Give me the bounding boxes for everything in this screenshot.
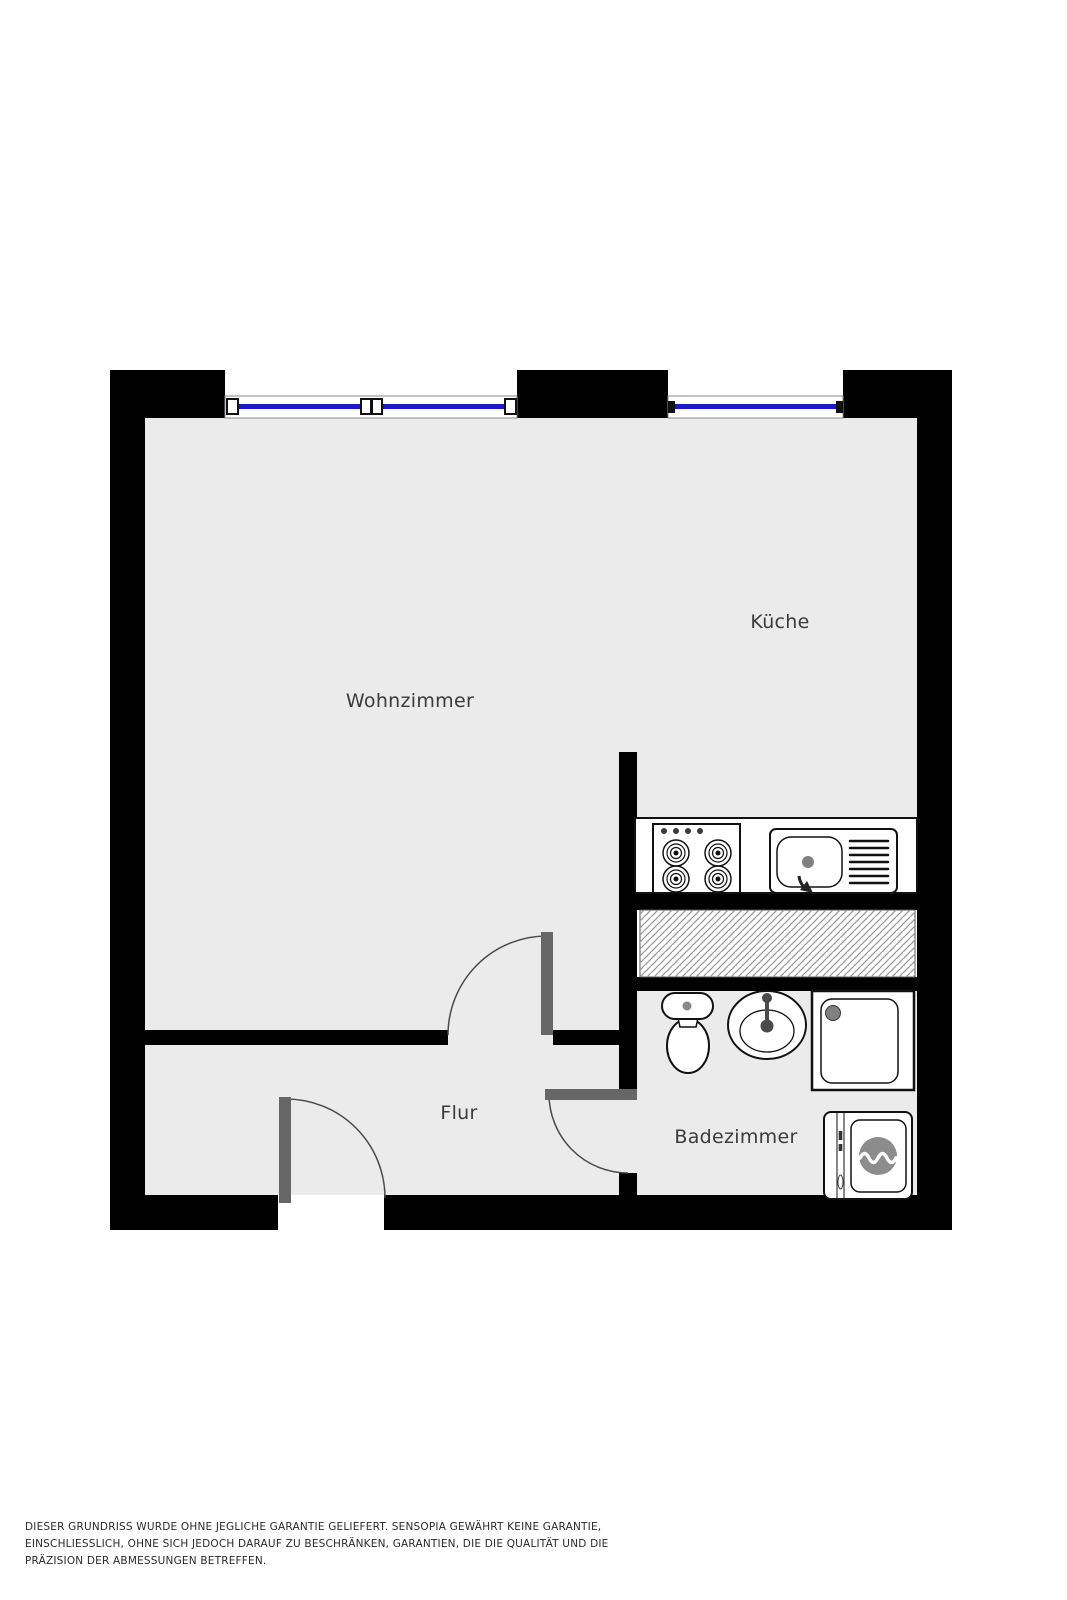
wall-bad-stub — [619, 1173, 637, 1195]
wall-duct-top — [619, 893, 917, 910]
burner — [663, 840, 689, 866]
stove-icon — [653, 824, 740, 893]
floorplan-drawing — [0, 0, 1067, 1600]
door-leaf — [279, 1097, 291, 1203]
window-glass-line — [674, 404, 837, 409]
burner — [705, 866, 731, 892]
kitchen-sink-icon — [770, 829, 897, 893]
door-leaf — [545, 1089, 637, 1100]
wall-top-pier-right — [843, 370, 952, 418]
wall-flur-left — [145, 1030, 448, 1045]
room-label-badezimmer: Badezimmer — [674, 1126, 797, 1148]
wall-top-pier-middle — [517, 370, 668, 418]
wall-top-pier-left — [110, 370, 225, 418]
floor-doorway-badezimmer — [619, 1090, 637, 1173]
wall-kueche-vertical — [619, 752, 637, 1090]
room-label-flur: Flur — [440, 1102, 477, 1124]
wall-bottom-right — [384, 1195, 952, 1230]
duct-hatch-area — [640, 910, 915, 977]
disclaimer-line: DIESER GRUNDRISS WURDE OHNE JEGLICHE GAR… — [25, 1519, 608, 1536]
door-leaf — [541, 932, 553, 1035]
burner — [663, 866, 689, 892]
wall-bottom-left — [110, 1195, 278, 1230]
burner — [705, 840, 731, 866]
shower-icon — [812, 991, 914, 1090]
floor-areas — [145, 416, 917, 1195]
washing-machine-icon — [824, 1112, 912, 1199]
disclaimer-text: DIESER GRUNDRISS WURDE OHNE JEGLICHE GAR… — [25, 1519, 608, 1570]
room-label-wohnzimmer: Wohnzimmer — [346, 690, 474, 712]
window-kueche — [668, 396, 843, 418]
wall-duct-bottom — [619, 977, 917, 991]
room-label-kueche: Küche — [750, 611, 809, 633]
wall-right — [917, 370, 952, 1230]
floorplan-page: Wohnzimmer Küche Flur Badezimmer DIESER … — [0, 0, 1067, 1600]
disclaimer-line: PRÄZISION DER ABMESSUNGEN BETREFFEN. — [25, 1553, 608, 1570]
washbasin-icon — [728, 991, 806, 1059]
disclaimer-line: EINSCHLIESSLICH, OHNE SICH JEDOCH DARAUF… — [25, 1536, 608, 1553]
wall-left — [110, 370, 145, 1230]
drainboard — [850, 841, 888, 883]
toilet-icon — [662, 993, 713, 1073]
wall-flur-right — [553, 1030, 619, 1045]
floor-doorway-wohnzimmer — [448, 1030, 553, 1045]
window-wohnzimmer — [225, 396, 517, 418]
floor-open-area — [145, 416, 917, 752]
